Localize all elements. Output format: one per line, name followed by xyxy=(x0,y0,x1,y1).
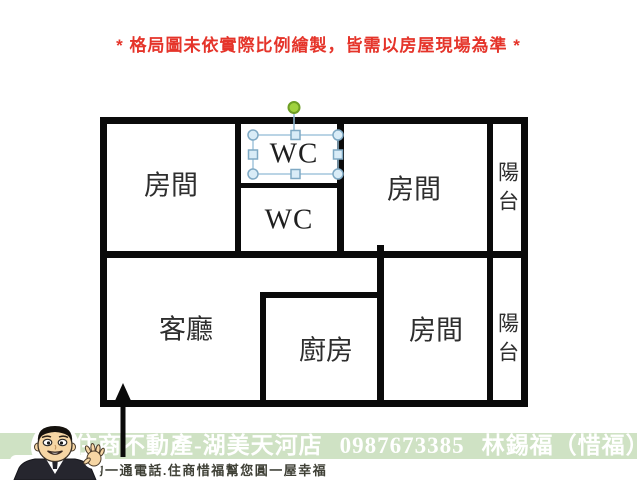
room-label-bedroom-top-left[interactable]: 房間 xyxy=(144,173,198,200)
room-label-balcony-bottom[interactable]: 陽台 xyxy=(497,312,518,370)
room-label-bedroom-top-right[interactable]: 房間 xyxy=(387,177,441,204)
wall-balcony xyxy=(487,117,493,407)
floorplan-canvas xyxy=(0,0,637,480)
wall-outer-left xyxy=(100,117,107,407)
room-label-wc-upper[interactable]: WC xyxy=(270,140,319,169)
selection-handle-right[interactable] xyxy=(334,150,343,159)
wall-wc-divider xyxy=(235,183,344,188)
room-label-balcony-top[interactable]: 陽台 xyxy=(497,161,518,219)
selection-handle-top-right[interactable] xyxy=(333,130,343,140)
wall-middle xyxy=(100,251,528,258)
selection-handle-bottom-right[interactable] xyxy=(333,169,343,179)
wall-kitchen-left xyxy=(260,292,266,407)
room-label-kitchen[interactable]: 廚房 xyxy=(299,338,353,365)
room-label-living-room[interactable]: 客廳 xyxy=(159,317,213,344)
selection-handle-bottom-left[interactable] xyxy=(248,169,258,179)
wall-outer-bottom xyxy=(100,400,528,407)
room-label-wc-lower[interactable]: WC xyxy=(265,206,314,235)
selection-handle-left[interactable] xyxy=(249,150,258,159)
wall-outer-top xyxy=(100,117,528,124)
entrance-arrow-icon xyxy=(114,383,133,457)
wall-kitchen-top xyxy=(260,292,383,298)
selection-handle-bottom[interactable] xyxy=(291,170,300,179)
rotation-handle-icon[interactable] xyxy=(289,102,300,113)
wall-outer-right xyxy=(521,117,528,407)
selection-handle-top-left[interactable] xyxy=(248,130,258,140)
wall-bedroom3-left xyxy=(377,245,384,407)
room-label-bedroom-bottom-right[interactable]: 房間 xyxy=(409,318,463,345)
